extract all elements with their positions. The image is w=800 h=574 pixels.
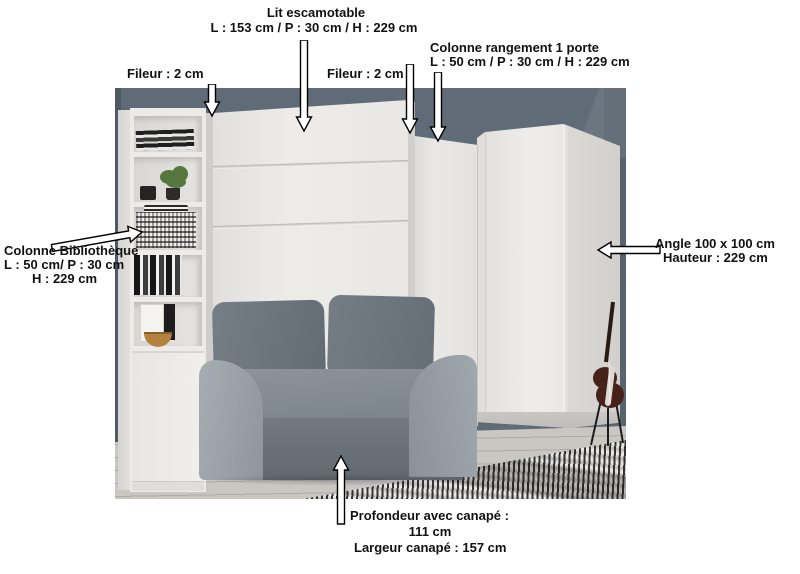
plant-icon — [166, 176, 186, 188]
plant-pot — [166, 188, 180, 200]
label-fileur-right: Fileur : 2 cm — [327, 67, 404, 81]
label-colonne-rangement-dims: L : 50 cm / P : 30 cm / H : 229 cm — [430, 55, 630, 69]
label-angle-dims: Hauteur : 229 cm — [663, 251, 768, 265]
label-fileur-left: Fileur : 2 cm — [127, 67, 204, 81]
bookshelf-cabinet-door — [132, 351, 204, 485]
decor-object — [140, 186, 156, 200]
sofa-arm-right — [409, 355, 477, 477]
vertical-books — [134, 255, 182, 295]
down-arrow-icon — [401, 64, 419, 136]
down-arrow-icon — [203, 84, 221, 118]
patterned-basket — [136, 212, 196, 248]
left-arrow-icon — [596, 240, 662, 260]
bed-panel-seam — [211, 220, 410, 229]
sofa-back-cushion-right — [327, 295, 435, 380]
label-canape-depth: Profondeur avec canapé : — [350, 509, 509, 523]
bookshelf-plinth — [132, 481, 204, 491]
bookshelf-column — [118, 108, 206, 492]
room-photo — [115, 88, 626, 499]
label-canape-depth-value: 111 cm — [409, 525, 452, 539]
bookshelf-side-panel — [118, 110, 130, 490]
label-canape-width: Largeur canapé : 157 cm — [354, 541, 506, 555]
bookshelf-front — [130, 108, 206, 492]
down-arrow-icon — [295, 40, 313, 134]
down-arrow-icon — [429, 72, 447, 144]
label-lit-dims: L : 153 cm / P : 30 cm / H : 229 cm — [211, 21, 418, 35]
up-arrow-icon — [332, 455, 350, 525]
wardrobe-door-seam — [485, 124, 486, 432]
guitar-icon — [583, 300, 626, 450]
bed-panel-seam — [211, 160, 410, 169]
plate-stack — [144, 205, 188, 212]
label-lit-title: Lit escamotable — [267, 6, 365, 20]
corner-wardrobe-door — [477, 124, 569, 432]
stacked-books — [136, 129, 195, 151]
annotated-product-image: Lit escamotable L : 153 cm / P : 30 cm /… — [0, 0, 800, 574]
label-bibliotheque-dims2: H : 229 cm — [32, 272, 97, 286]
